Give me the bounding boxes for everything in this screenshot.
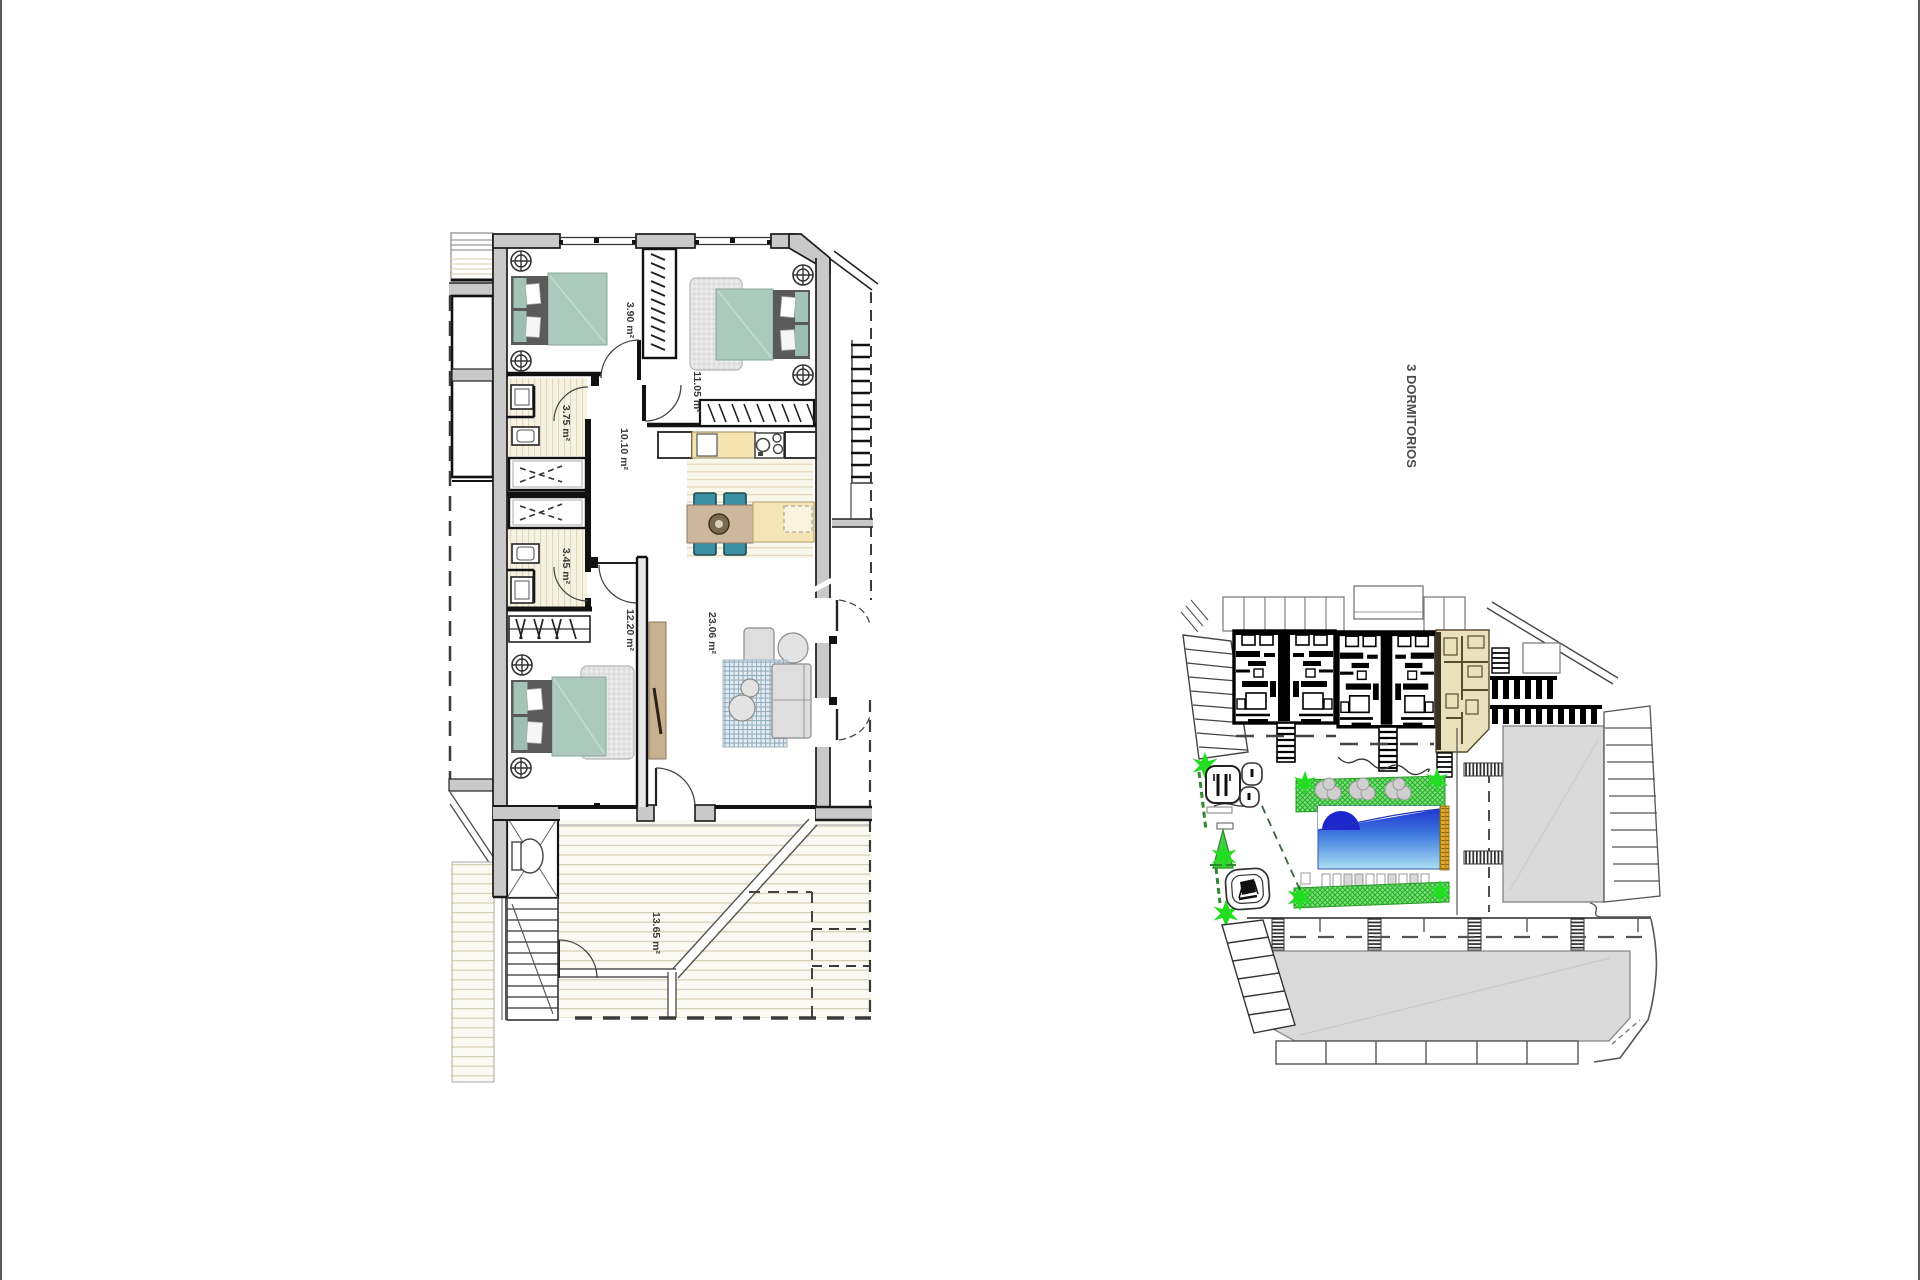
svg-text:12.20 m²: 12.20 m²: [624, 609, 636, 652]
svg-text:3.90 m²: 3.90 m²: [624, 302, 636, 339]
svg-text:23.06 m²: 23.06 m²: [706, 612, 718, 655]
svg-text:3.75 m²: 3.75 m²: [560, 405, 572, 442]
svg-text:10.10 m²: 10.10 m²: [618, 428, 630, 471]
svg-text:3 DORMITORIOS: 3 DORMITORIOS: [1404, 364, 1419, 468]
svg-text:3.45 m²: 3.45 m²: [560, 548, 572, 585]
svg-text:11.05 m²: 11.05 m²: [691, 371, 703, 413]
svg-text:13.65 m²: 13.65 m²: [650, 912, 662, 955]
